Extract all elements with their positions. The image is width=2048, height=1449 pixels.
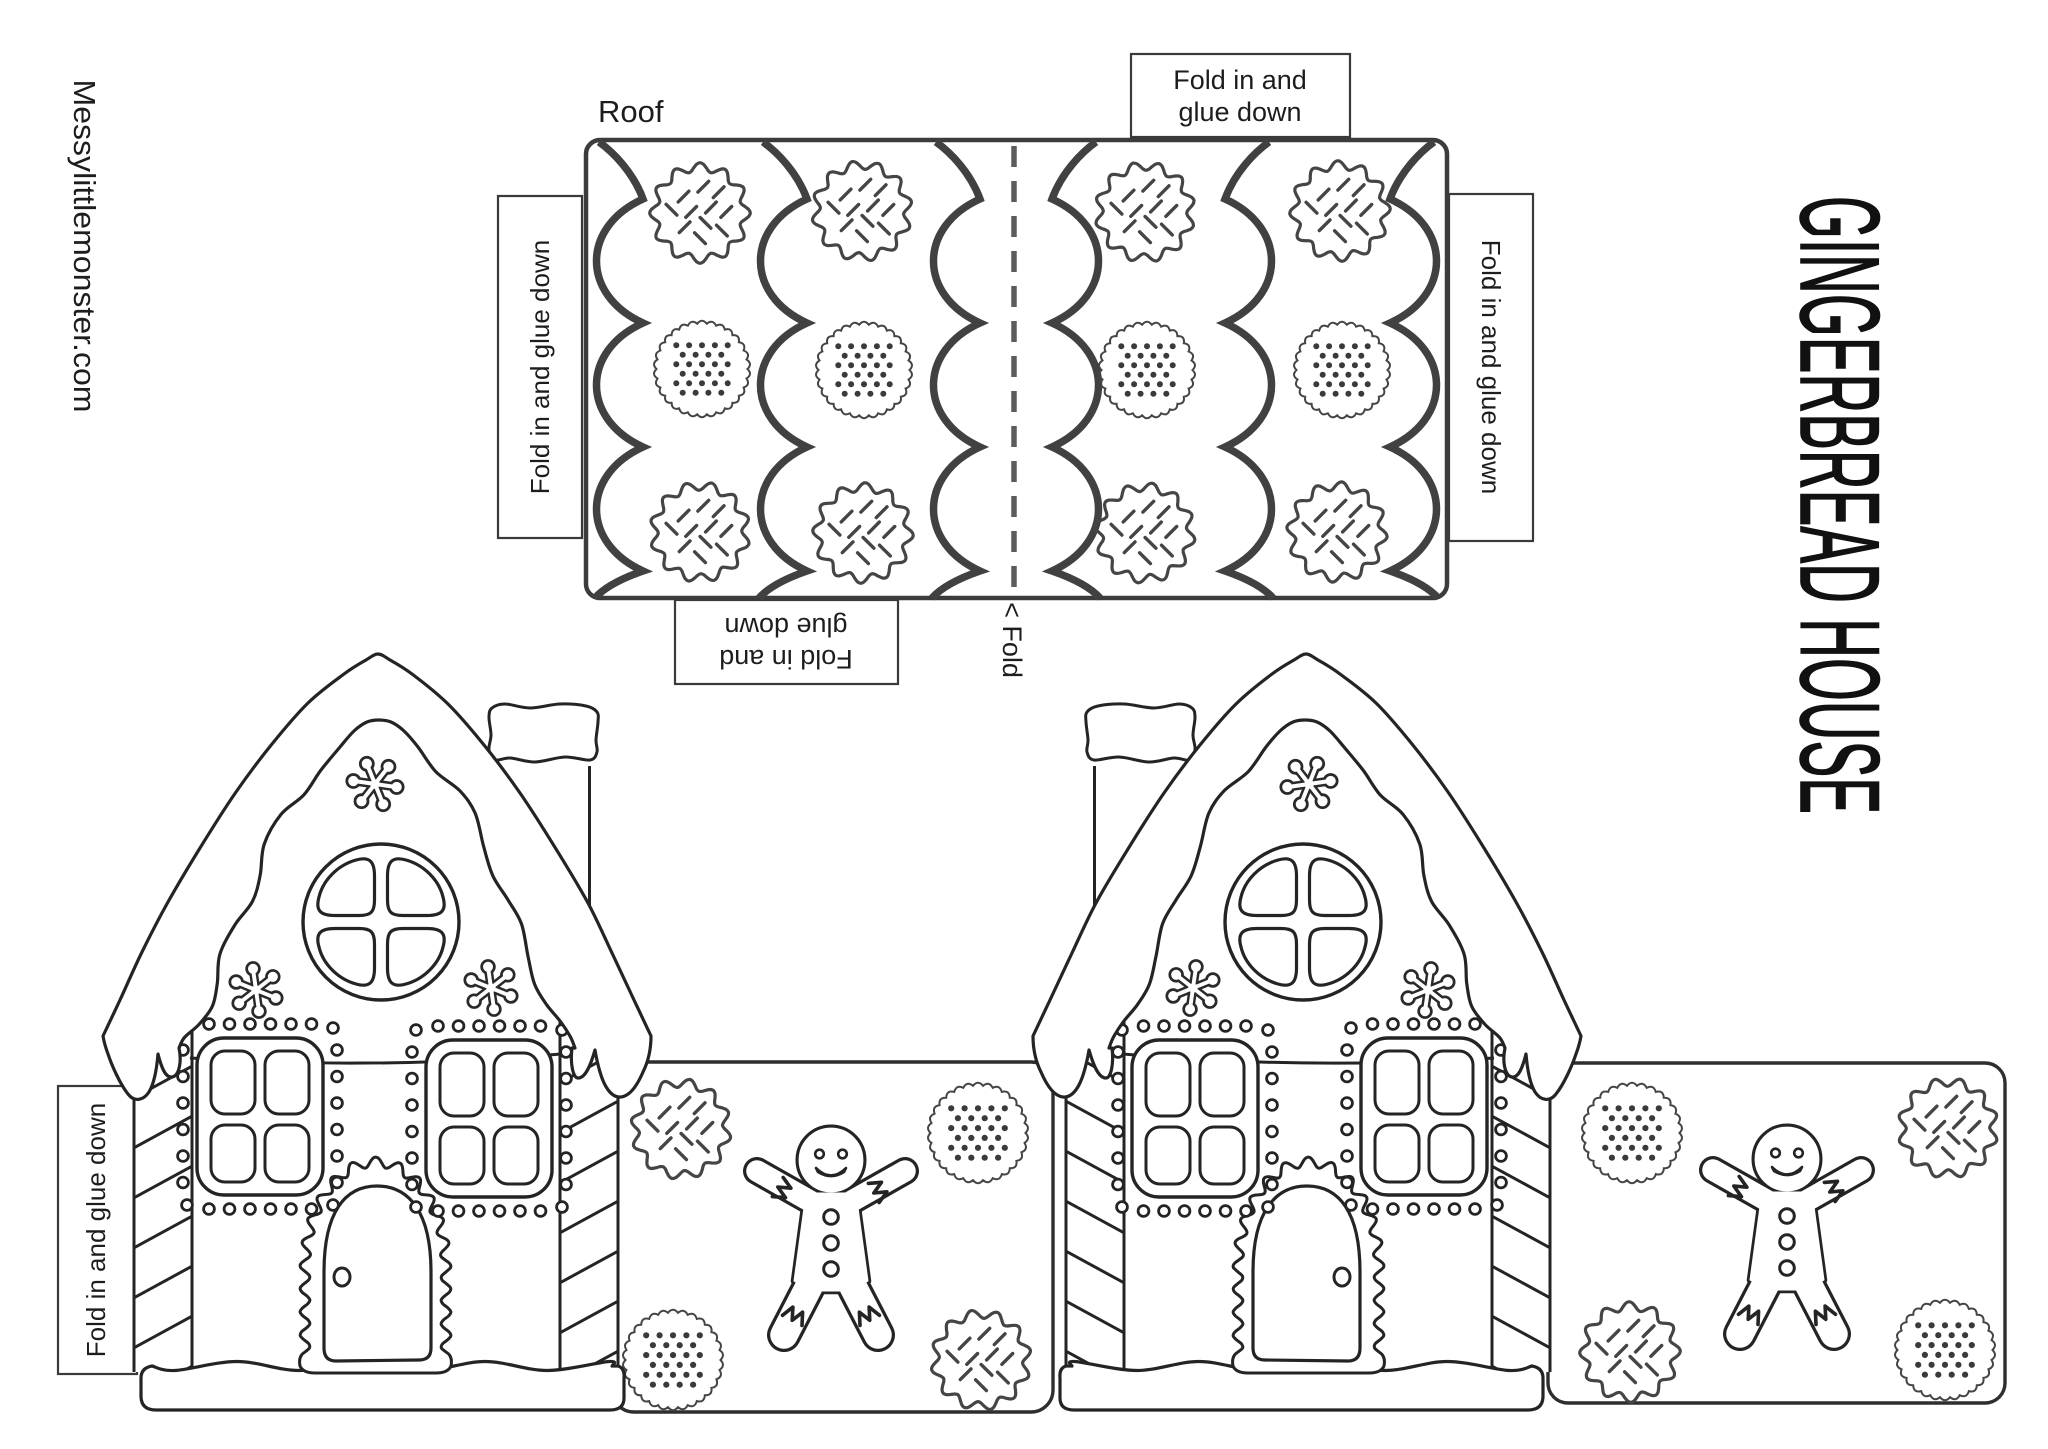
svg-text:Fold in and: Fold in and (1173, 65, 1307, 95)
svg-text:Roof: Roof (598, 94, 664, 129)
svg-text:glue down: glue down (1178, 97, 1301, 127)
svg-text:Messylittlemonster.com: Messylittlemonster.com (67, 80, 102, 413)
svg-text:Fold in and glue down: Fold in and glue down (81, 1103, 111, 1357)
svg-text:Fold in and glue down: Fold in and glue down (525, 240, 555, 494)
svg-text:GINGERBREAD HOUSE: GINGERBREAD HOUSE (1777, 196, 1902, 814)
svg-text:glue down: glue down (724, 612, 847, 642)
svg-text:Fold in and glue down: Fold in and glue down (1476, 240, 1506, 494)
svg-text:< Fold: < Fold (997, 602, 1027, 678)
svg-text:Fold in and: Fold in and (719, 644, 853, 674)
